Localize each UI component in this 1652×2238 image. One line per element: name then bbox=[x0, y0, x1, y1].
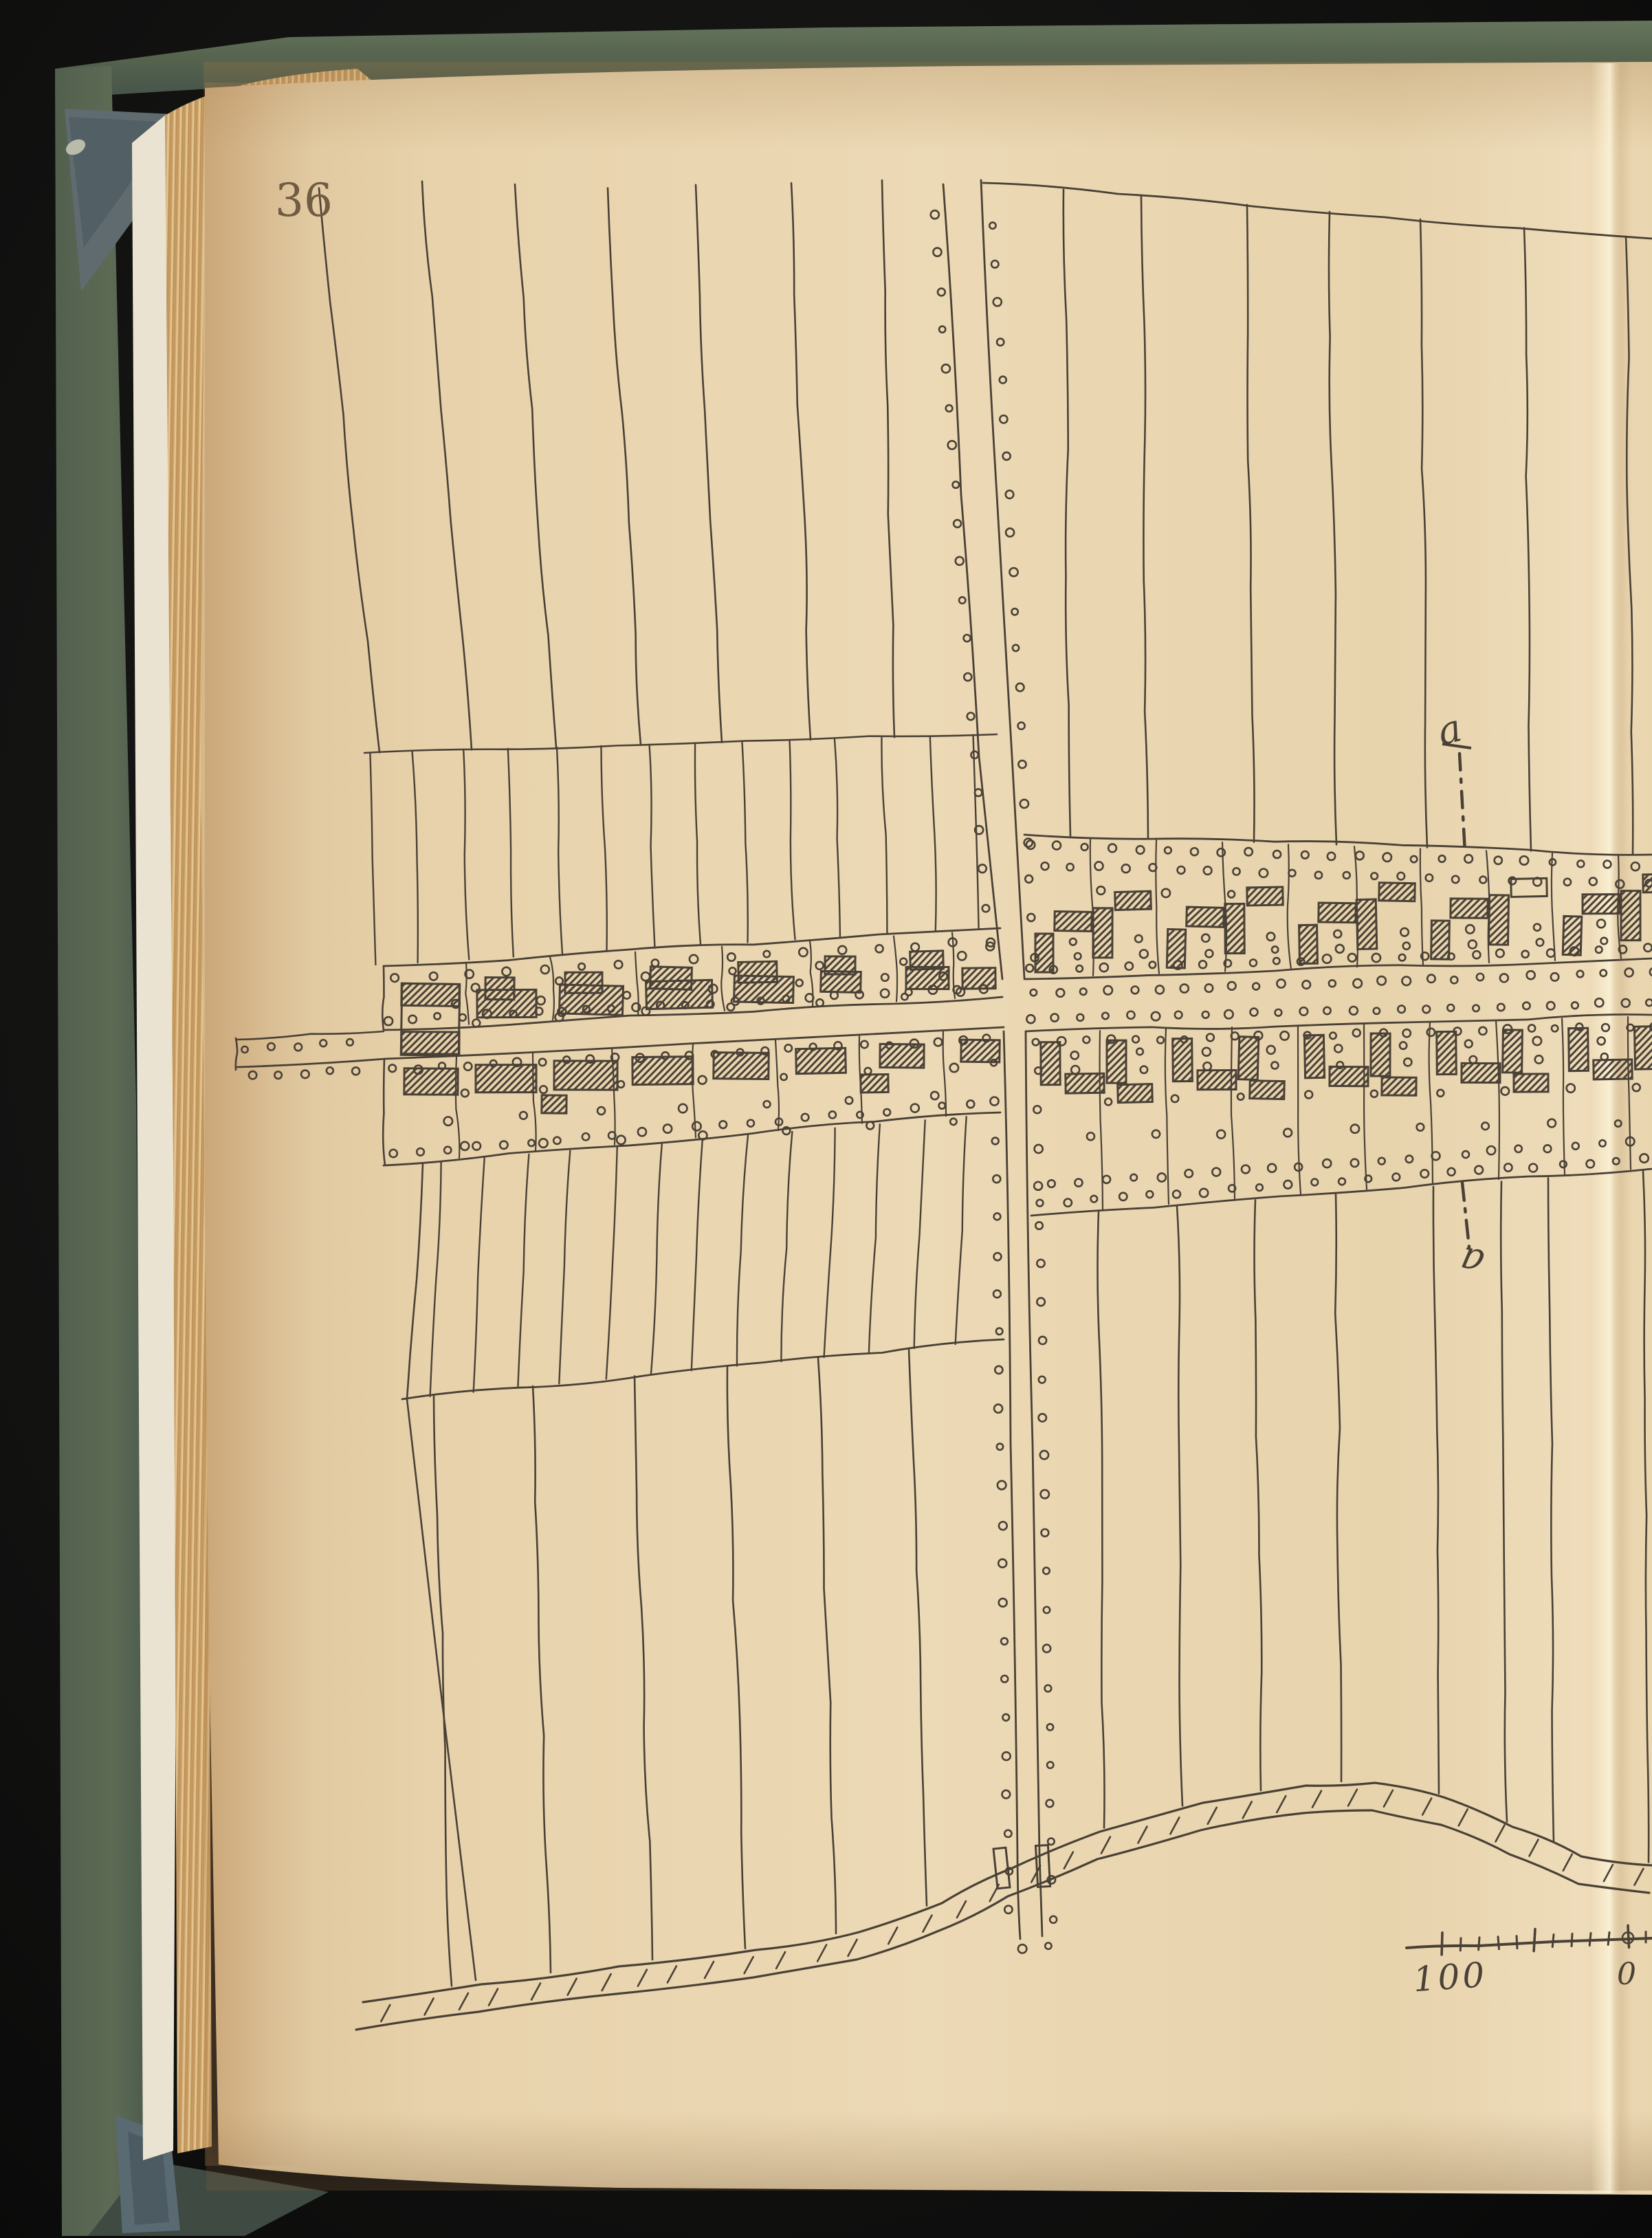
farm-building bbox=[1118, 1084, 1153, 1103]
farm-building bbox=[1238, 1037, 1259, 1080]
farm-building bbox=[1187, 907, 1224, 927]
farm-building bbox=[1569, 1028, 1589, 1071]
scale-bar-tick bbox=[1517, 1936, 1517, 1949]
farm-building bbox=[1583, 895, 1620, 914]
farm-building bbox=[1115, 891, 1152, 910]
farm-building bbox=[401, 983, 459, 1006]
scale-bar-tick bbox=[1498, 1937, 1499, 1949]
farm-building bbox=[1437, 1031, 1457, 1074]
farm-building bbox=[1503, 1030, 1523, 1073]
book-scan-image: 36 a a 100 0 bbox=[0, 0, 1652, 2238]
farm-building bbox=[542, 1095, 566, 1113]
farm-building bbox=[1319, 903, 1356, 923]
farm-building bbox=[1356, 899, 1377, 950]
farm-building bbox=[880, 1044, 924, 1068]
scale-bar-tick bbox=[1534, 1929, 1535, 1951]
farm-building bbox=[401, 1032, 459, 1054]
farm-building bbox=[1634, 1027, 1652, 1070]
farm-building bbox=[1451, 899, 1488, 918]
farm-building bbox=[796, 1048, 846, 1073]
farm-building bbox=[1643, 874, 1652, 892]
page-number: 36 bbox=[275, 174, 333, 227]
scale-label-100: 100 bbox=[1412, 1955, 1488, 1999]
scale-bar-tick bbox=[1589, 1933, 1591, 1945]
farm-building bbox=[1093, 908, 1112, 958]
farm-building bbox=[632, 1057, 693, 1085]
farm-building bbox=[554, 1061, 617, 1090]
farm-building bbox=[646, 980, 712, 1009]
farm-building bbox=[1488, 895, 1508, 945]
scale-bar-tick bbox=[1460, 1938, 1461, 1951]
farm-building bbox=[1371, 1033, 1390, 1076]
farm-building bbox=[1055, 912, 1092, 932]
page-top-shading bbox=[203, 62, 1652, 151]
farm-building bbox=[821, 971, 861, 992]
farm-building bbox=[1330, 1066, 1368, 1086]
page-bottom-shading bbox=[206, 2111, 1652, 2191]
farm-building bbox=[1304, 1035, 1324, 1078]
farm-building bbox=[476, 1065, 536, 1093]
scale-bar-tick bbox=[1479, 1938, 1479, 1950]
farm-building bbox=[1173, 1038, 1193, 1081]
farm-building bbox=[1431, 921, 1450, 959]
scale-label-0: 0 bbox=[1617, 1957, 1636, 1992]
scale-bar-tick bbox=[1552, 1935, 1554, 1947]
farm-building bbox=[1382, 1077, 1416, 1095]
farm-building bbox=[477, 989, 536, 1018]
page-left-shading bbox=[205, 83, 315, 2166]
farm-building bbox=[1621, 891, 1640, 941]
scanned-book-photo: 36 a a 100 0 bbox=[0, 0, 1652, 2238]
page-crease bbox=[1591, 63, 1633, 2193]
farm-building bbox=[861, 1074, 888, 1093]
farm-building bbox=[1379, 883, 1415, 901]
farm-building bbox=[404, 1068, 458, 1095]
farm-building bbox=[1594, 1060, 1632, 1079]
farm-building bbox=[1225, 903, 1244, 953]
farm-building bbox=[1107, 1040, 1126, 1083]
farm-building bbox=[962, 968, 995, 989]
farm-building bbox=[1041, 1042, 1060, 1085]
scale-bar-tick bbox=[1442, 1933, 1442, 1955]
farm-building bbox=[714, 1053, 769, 1079]
farm-building bbox=[1514, 1074, 1548, 1092]
farm-building bbox=[1250, 1081, 1285, 1099]
farm-building bbox=[1247, 887, 1283, 906]
farm-building bbox=[1462, 1063, 1500, 1082]
scale-bar-tick bbox=[1608, 1932, 1609, 1944]
farm-building bbox=[906, 967, 949, 989]
farm-building bbox=[1066, 1073, 1104, 1093]
farm-building bbox=[1198, 1071, 1236, 1090]
farm-building bbox=[1167, 929, 1185, 968]
scale-bar-tick bbox=[1572, 1934, 1572, 1946]
